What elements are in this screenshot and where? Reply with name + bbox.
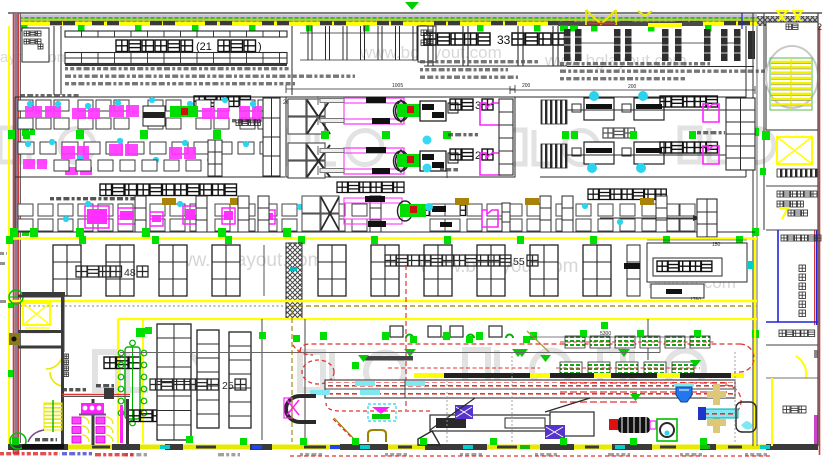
svg-text:25: 25	[222, 380, 234, 392]
svg-text:1005: 1005	[392, 83, 403, 89]
svg-text:): )	[258, 41, 262, 53]
svg-text:5300: 5300	[600, 331, 611, 337]
svg-text:150: 150	[712, 242, 721, 248]
svg-text:48: 48	[124, 267, 136, 279]
svg-text:33: 33	[497, 33, 511, 47]
svg-text:55: 55	[513, 256, 525, 268]
svg-text:200: 200	[522, 83, 531, 89]
svg-text:200: 200	[628, 84, 637, 90]
svg-text:(21: (21	[196, 41, 212, 53]
